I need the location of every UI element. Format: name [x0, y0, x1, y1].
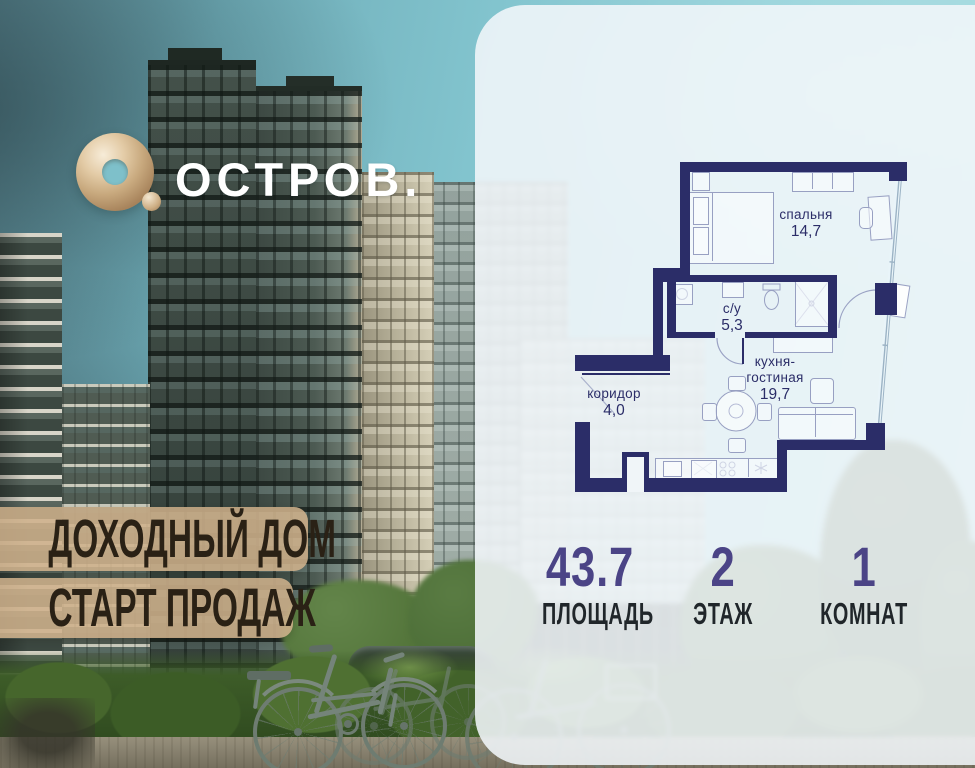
- banner-sales-start-text: СТАРТ ПРОДАЖ: [0, 577, 316, 639]
- door-frame: [622, 452, 649, 492]
- wall: [866, 423, 885, 450]
- room-label-bedroom: спальня 14,7: [756, 207, 856, 240]
- wall: [653, 275, 837, 282]
- promo-poster: спальня 14,7 с/у 5,3 коридор 4,0 кухня- …: [0, 0, 975, 768]
- wall: [575, 478, 782, 492]
- wall: [667, 281, 676, 337]
- bathroom-sink: [722, 282, 744, 298]
- wall-column: [875, 283, 897, 315]
- banner-sales-start: СТАРТ ПРОДАЖ: [0, 578, 293, 638]
- room-name: спальня: [756, 207, 856, 223]
- room-name-line1: кухня-: [735, 354, 815, 370]
- pillow: [693, 197, 709, 225]
- room-area: 5,3: [706, 318, 758, 334]
- wall: [653, 268, 663, 363]
- room-name: с/у: [706, 301, 758, 317]
- stove: [691, 460, 717, 479]
- banner-income-house: ДОХОДНЫЙ ДОМ: [0, 507, 308, 571]
- wall: [575, 355, 670, 371]
- room-area: 4,0: [574, 403, 654, 419]
- dining-chair: [702, 403, 717, 421]
- nightstand: [692, 172, 710, 191]
- stat-area-label: ПЛОЩАДЬ: [542, 600, 638, 628]
- wall: [680, 162, 690, 276]
- wardrobe: [792, 172, 854, 192]
- wall: [889, 162, 907, 181]
- stat-rooms-value: 1: [806, 541, 923, 593]
- wall: [582, 373, 670, 375]
- pillow: [693, 227, 709, 255]
- wall: [828, 275, 837, 337]
- room-label-bathroom: с/у 5,3: [706, 301, 758, 334]
- stat-floor-label: ЭТАЖ: [675, 600, 771, 628]
- wardrobe-divider: [812, 173, 813, 189]
- desk-chair: [859, 207, 873, 229]
- dining-chair: [728, 438, 746, 453]
- floor-plan: спальня 14,7 с/у 5,3 коридор 4,0 кухня- …: [560, 150, 925, 510]
- wall: [680, 162, 906, 172]
- room-name-line2: гостиная: [735, 370, 815, 386]
- wall: [745, 332, 837, 338]
- stat-floor-value: 2: [665, 541, 782, 593]
- shower: [795, 281, 830, 327]
- stat-floor: 2 ЭТАЖ: [648, 541, 798, 628]
- stat-area-value: 43.7: [532, 541, 649, 593]
- brand-dot-icon: [142, 192, 161, 211]
- washing-machine: [673, 284, 693, 305]
- kitchen-sink: [663, 461, 682, 477]
- room-area: 14,7: [756, 224, 856, 240]
- banner-income-house-text: ДОХОДНЫЙ ДОМ: [0, 508, 336, 570]
- soil-shadow: [0, 698, 95, 768]
- dining-chair: [757, 403, 772, 421]
- sofa-line: [779, 414, 853, 415]
- room-label-corridor: коридор 4,0: [574, 386, 654, 419]
- wardrobe-divider: [832, 173, 833, 189]
- bed-line: [712, 193, 713, 261]
- stat-rooms-label: КОМНАТ: [816, 600, 912, 628]
- stat-area: 43.7 ПЛОЩАДЬ: [515, 541, 665, 628]
- counter-divider: [748, 459, 749, 477]
- sofa: [778, 407, 856, 440]
- room-area: 19,7: [735, 387, 815, 403]
- brand-name: ОСТРОВ.: [175, 152, 422, 207]
- room-label-kitchen-living: кухня- гостиная 19,7: [735, 354, 815, 403]
- room-name: коридор: [574, 386, 654, 402]
- sofa-divider: [815, 408, 816, 437]
- stat-rooms: 1 КОМНАТ: [789, 541, 939, 628]
